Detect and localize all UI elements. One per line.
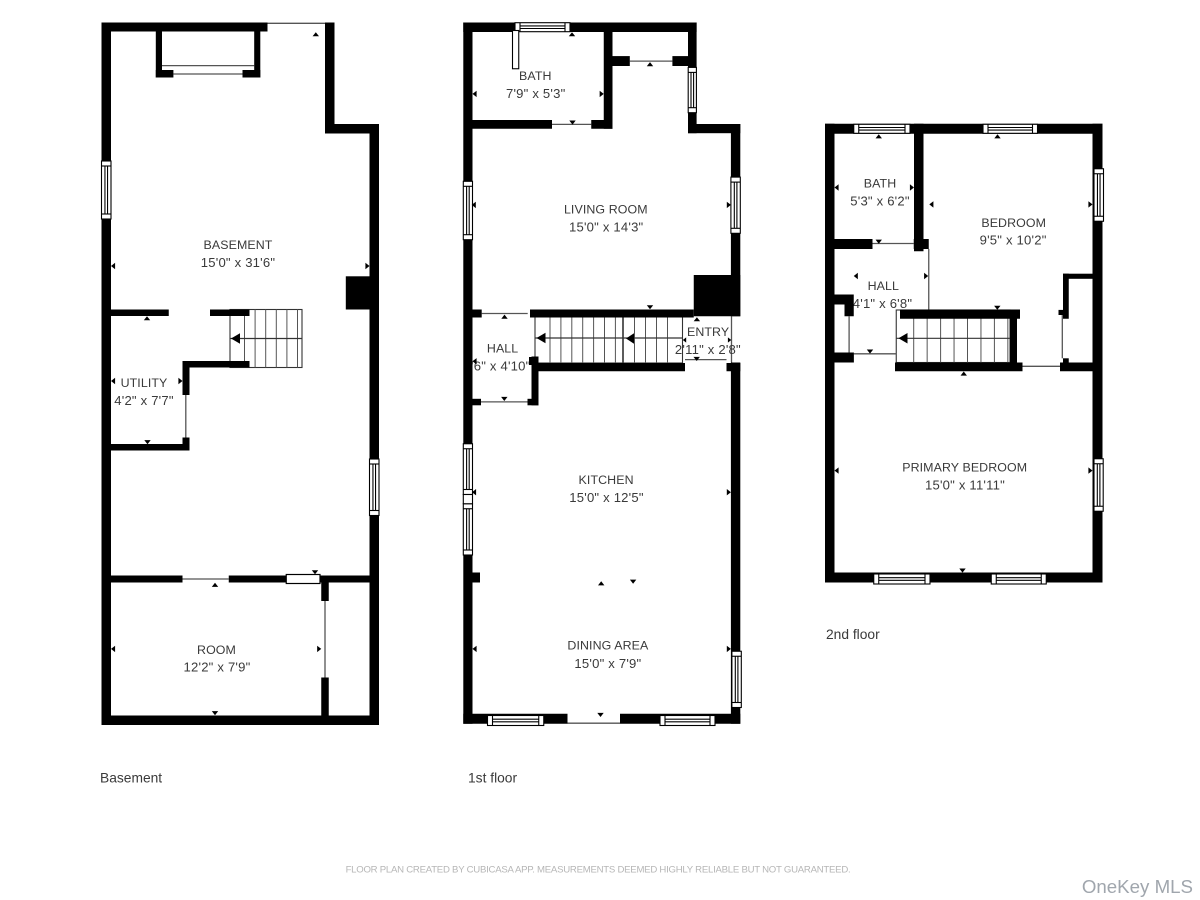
- svg-text:UTILITY: UTILITY: [121, 376, 168, 390]
- svg-text:15'0" x 31'6": 15'0" x 31'6": [201, 255, 276, 270]
- svg-text:15'0" x 12'5": 15'0" x 12'5": [569, 490, 644, 505]
- svg-text:15'0" x 7'9": 15'0" x 7'9": [574, 656, 641, 671]
- svg-text:1st floor: 1st floor: [468, 771, 517, 786]
- svg-text:12'2" x 7'9": 12'2" x 7'9": [184, 660, 251, 675]
- svg-text:Basement: Basement: [100, 771, 162, 786]
- svg-text:KITCHEN: KITCHEN: [579, 473, 634, 487]
- svg-text:15'0" x 11'11": 15'0" x 11'11": [925, 478, 1005, 493]
- svg-text:HALL: HALL: [868, 279, 899, 293]
- svg-text:2'11" x 2'8": 2'11" x 2'8": [675, 342, 741, 357]
- svg-text:15'0" x 14'3": 15'0" x 14'3": [569, 220, 644, 235]
- svg-text:BATH: BATH: [519, 69, 552, 83]
- svg-text:LIVING ROOM: LIVING ROOM: [564, 203, 648, 217]
- svg-text:DINING AREA: DINING AREA: [567, 639, 649, 653]
- svg-text:9'5" x 10'2": 9'5" x 10'2": [980, 233, 1047, 248]
- svg-text:BEDROOM: BEDROOM: [981, 216, 1046, 230]
- svg-text:PRIMARY BEDROOM: PRIMARY BEDROOM: [902, 461, 1027, 475]
- svg-text:4'2" x 7'7": 4'2" x 7'7": [114, 393, 174, 408]
- svg-text:5'3" x 6'2": 5'3" x 6'2": [850, 193, 910, 208]
- svg-text:2nd floor: 2nd floor: [826, 627, 880, 642]
- svg-text:BASEMENT: BASEMENT: [204, 238, 273, 252]
- svg-text:OneKey MLS: OneKey MLS: [1082, 876, 1193, 897]
- svg-text:BATH: BATH: [864, 177, 897, 191]
- svg-text:FLOOR PLAN CREATED BY CUBICASA: FLOOR PLAN CREATED BY CUBICASA APP. MEAS…: [346, 865, 851, 876]
- svg-text:ENTRY: ENTRY: [687, 325, 729, 339]
- svg-text:HALL: HALL: [487, 341, 518, 355]
- svg-text:7'9" x 5'3": 7'9" x 5'3": [506, 86, 566, 101]
- svg-text:4'1" x 6'8": 4'1" x 6'8": [853, 296, 913, 311]
- svg-text:ROOM: ROOM: [197, 643, 236, 657]
